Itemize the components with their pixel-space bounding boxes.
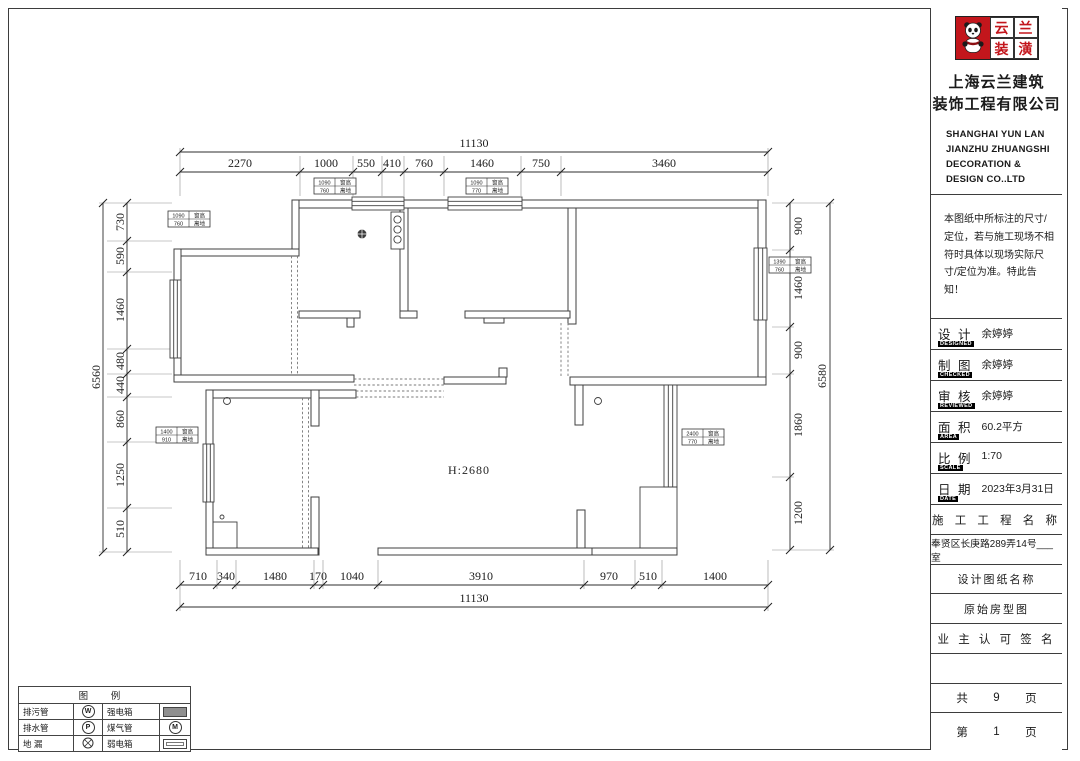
field-area: 面 积60.2平方 AREA [931,411,1062,442]
total-pages-value: 9 [993,692,999,704]
svg-text:1390: 1390 [773,259,785,265]
dim-label: 1460 [791,276,805,300]
svg-text:窗高: 窗高 [340,178,352,186]
title-block: 云 兰 装 潢 上海云兰建筑 装饰工程有限公司 SHANGHAI YUN LAN… [930,8,1062,750]
field-reviewed: 审 核余婷婷 REVIEWED [931,380,1062,411]
dim-label: 730 [113,213,127,231]
dim-label: 590 [113,247,127,265]
window-symbols [170,197,767,502]
dim-label: 1000 [314,156,338,170]
weak-electric-box-icon [163,739,187,749]
strong-electric-box-icon [163,707,187,717]
svg-text:1090: 1090 [470,180,482,186]
page-number-value: 1 [993,726,999,738]
field-sub-label: AREA [938,434,959,440]
window-tag: 1090窗高 760离地 [314,178,356,194]
dim-label: 6560 [89,365,103,389]
balcony-step [640,487,677,548]
svg-text:离地: 离地 [795,265,807,273]
svg-text:760: 760 [174,221,183,227]
total-pages-row: 共 9 页 [931,683,1062,712]
dim-label: 1400 [703,569,727,583]
legend-row: 地 漏 弱电箱 [19,736,191,752]
svg-text:760: 760 [775,267,784,273]
dashed-wall-lines [292,256,569,548]
floor-drain-icon [595,398,602,405]
dim-label: 6580 [815,364,829,388]
svg-text:770: 770 [688,439,697,445]
svg-text:离地: 离地 [492,186,504,194]
gas-pipe-icon: M [169,721,182,734]
dim-label: 1460 [113,298,127,322]
svg-text:2400: 2400 [686,431,698,437]
field-date: 日 期2023年3月31日 DATE [931,473,1062,504]
site-dimension-notice: 本图纸中所标注的尺寸/定位，若与施工现场不相符时具体以现场实际尺寸/定位为准。特… [931,194,1062,318]
drawing-name: 原始房型图 [931,593,1062,623]
dim-label: 3460 [652,156,676,170]
field-drawn: 制 图余婷婷 CHECKED [931,349,1062,380]
svg-text:窗高: 窗高 [492,178,504,186]
dim-label: 410 [383,156,401,170]
field-designed: 设 计余婷婷 DESIGNED [931,318,1062,349]
dim-label: 970 [600,569,618,583]
dim-label: 1040 [340,569,364,583]
legend-item-label: 排污管 [19,704,74,720]
dim-label: 2270 [228,156,252,170]
svg-text:1400: 1400 [160,429,172,435]
svg-text:离地: 离地 [340,186,352,194]
field-sub-label: DATE [938,496,958,502]
dim-label: 900 [791,341,805,359]
dim-label: 340 [217,569,235,583]
legend-item-label: 地 漏 [19,736,74,752]
floor-drain-icon [82,737,94,749]
legend-item-label: 煤气管 [103,720,160,736]
legend-item-label: 排水管 [19,720,74,736]
svg-text:1090: 1090 [318,180,330,186]
dim-label: 1860 [791,413,805,437]
dim-label: 1480 [263,569,287,583]
window-tag: 2400窗高 770离地 [682,429,724,445]
dim-label: 710 [189,569,207,583]
dim-label: 1200 [791,501,805,525]
company-name-cn: 上海云兰建筑 装饰工程有限公司 [931,68,1062,120]
field-sub-label: DESIGNED [938,341,974,347]
legend-item-label: 强电箱 [103,704,160,720]
dim-label: 550 [357,156,375,170]
dim-label: 11130 [459,591,488,605]
dim-label: 11130 [459,136,488,150]
field-sub-label: SCALE [938,465,963,471]
legend-table: 图 例 排污管 W 强电箱 排水管 P 煤气管 M 地 漏 弱电箱 [18,686,191,752]
dim-label: 900 [791,217,805,235]
window-tag: 1390窗高 760离地 [769,257,811,273]
project-name-header: 施 工 工 程 名 称 [931,504,1062,534]
dim-label: 170 [309,569,327,583]
sewage-pipe-icon: W [82,705,95,718]
page-number-row: 第 1 页 [931,712,1062,750]
svg-text:离地: 离地 [194,219,206,227]
svg-text:770: 770 [472,188,481,194]
dim-label: 1250 [113,463,127,487]
drain-pipe-icon: P [82,721,95,734]
floor-plan-canvas: 11130 2270 1000 550 410 760 1460 750 346… [0,0,930,761]
svg-text:910: 910 [162,437,171,443]
company-logo: 云 兰 装 潢 [931,8,1062,68]
dim-label: 440 [113,376,127,394]
dim-label: 750 [532,156,550,170]
ceiling-height-label: H:2680 [448,463,490,477]
brand-characters: 云 兰 装 潢 [990,17,1038,59]
project-address: 奉贤区长庚路289弄14号___室 [931,534,1062,564]
dim-label: 760 [415,156,433,170]
dim-label: 480 [113,352,127,370]
svg-text:窗高: 窗高 [795,257,807,265]
drawing-sheet: { "titleblock": { "logo": {"brand_char_1… [0,0,1080,761]
dim-label: 3910 [469,569,493,583]
company-name-en: SHANGHAI YUN LAN JIANZHU ZHUANGSHI DECOR… [931,120,1062,194]
field-sub-label: CHECKED [938,372,972,378]
field-sub-label: REVIEWED [938,403,975,409]
svg-text:1090: 1090 [172,213,184,219]
dim-label: 510 [113,520,127,538]
svg-text:窗高: 窗高 [194,211,206,219]
dim-label: 510 [639,569,657,583]
window-tag: 1400窗高 910离地 [156,427,198,443]
floor-drain-icon [220,515,224,519]
window-tag: 1090窗高 760离地 [168,211,210,227]
svg-text:760: 760 [320,188,329,194]
owner-signature-header: 业 主 认 可 签 名 [931,623,1062,653]
legend-title: 图 例 [19,687,191,704]
svg-text:离地: 离地 [182,435,194,443]
signature-space [931,653,1062,683]
svg-text:窗高: 窗高 [708,429,720,437]
legend-row: 排污管 W 强电箱 [19,704,191,720]
legend-item-label: 弱电箱 [103,736,160,752]
dim-label: 860 [113,410,127,428]
panda-mascot-icon [956,17,990,59]
window-tag: 1090窗高 770离地 [466,178,508,194]
dim-label: 1460 [470,156,494,170]
svg-text:窗高: 窗高 [182,427,194,435]
duct-box [213,522,237,548]
drawing-name-header: 设计图纸名称 [931,564,1062,593]
floor-drain-icon [224,398,231,405]
svg-text:离地: 离地 [708,437,720,445]
field-scale: 比 例1:70 SCALE [931,442,1062,473]
legend-row: 排水管 P 煤气管 M [19,720,191,736]
